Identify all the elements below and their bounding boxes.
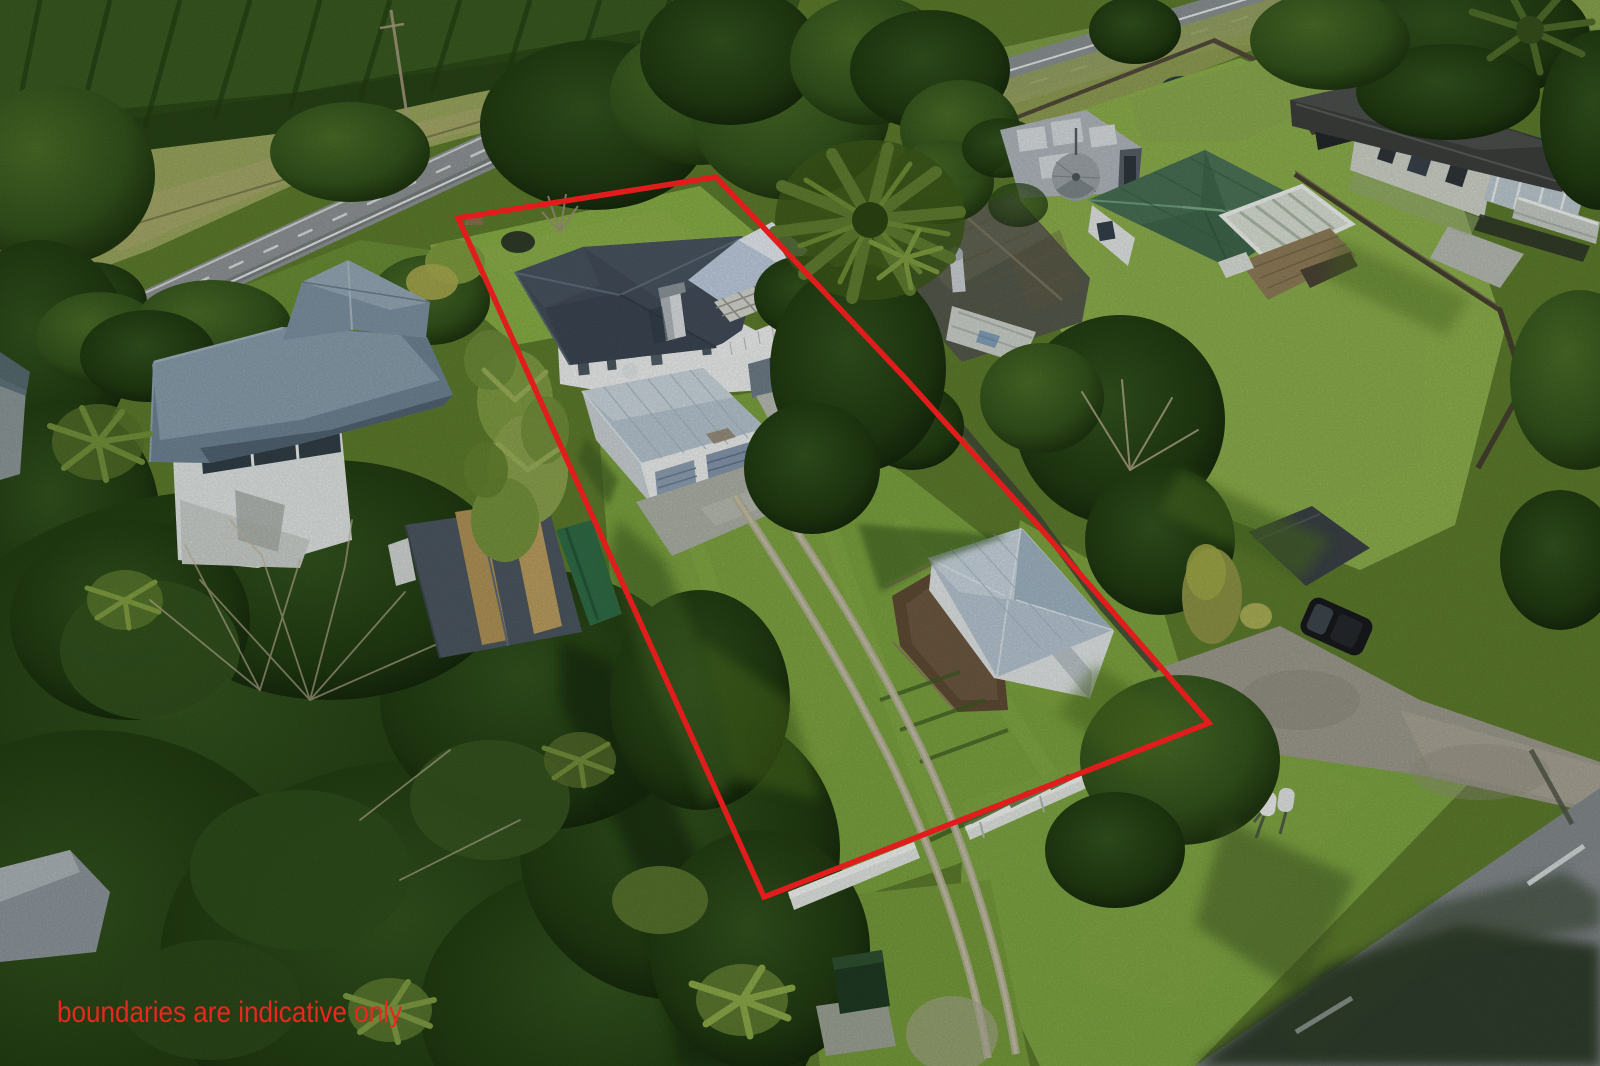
svg-text:boundaries are indicative only: boundaries are indicative only [57, 996, 402, 1029]
